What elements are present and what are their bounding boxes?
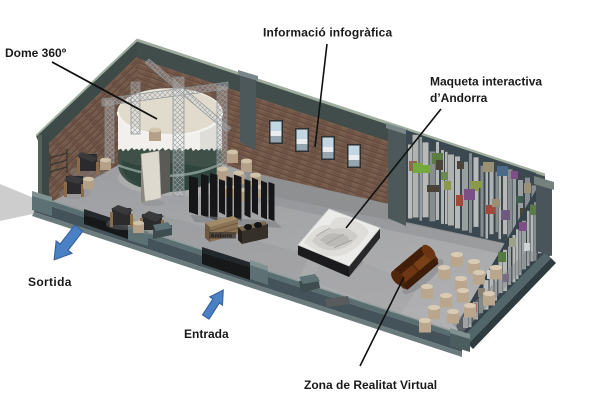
svg-text:d’Andorra: d’Andorra — [430, 91, 488, 105]
svg-text:Sortida: Sortida — [28, 275, 72, 289]
svg-text:Maqueta interactiva: Maqueta interactiva — [430, 75, 542, 89]
svg-text:Entrada: Entrada — [184, 327, 229, 341]
svg-text:Zona de Realitat Virtual: Zona de Realitat Virtual — [304, 378, 437, 392]
svg-text:Informació infogràfica: Informació infogràfica — [263, 26, 392, 40]
svg-text:Andorra: Andorra — [211, 234, 233, 240]
svg-text:Dome 360º: Dome 360º — [5, 46, 67, 60]
